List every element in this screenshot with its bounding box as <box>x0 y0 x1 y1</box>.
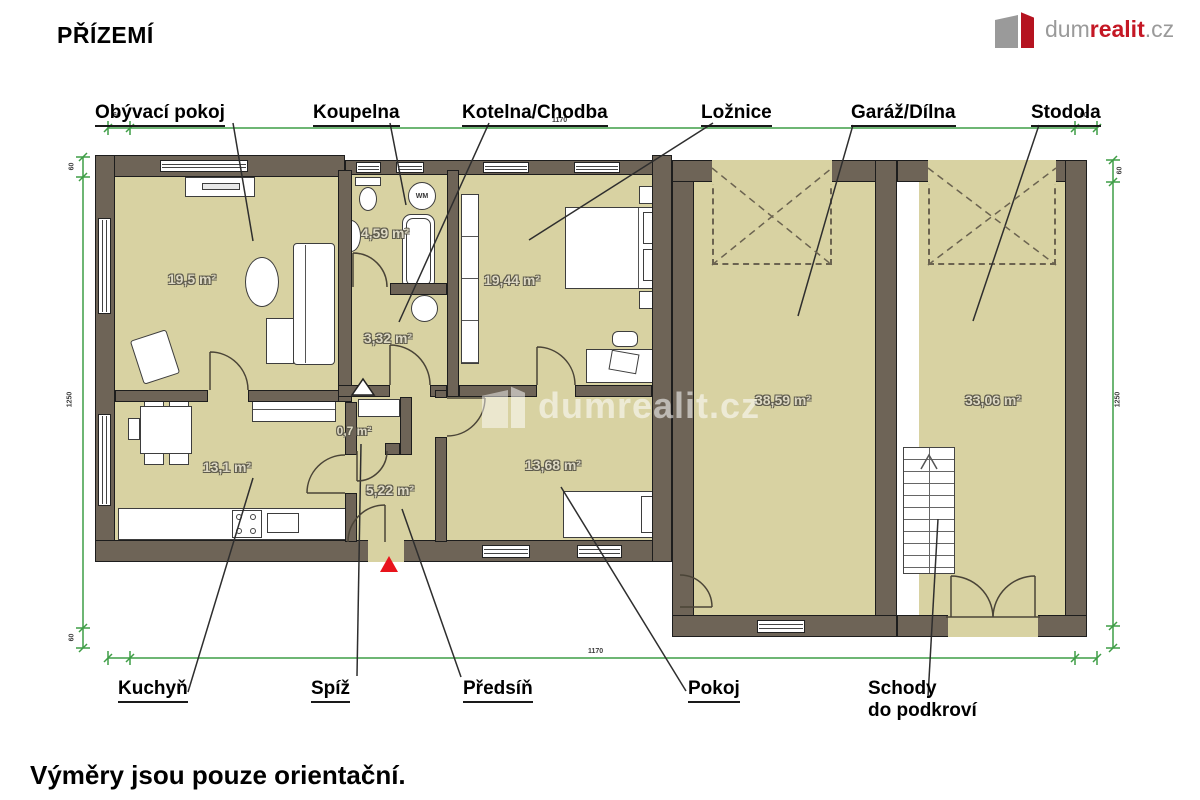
kitchen-sink <box>267 513 299 533</box>
dining-chair <box>144 453 164 465</box>
label-kitchen: Kuchyň <box>118 678 188 703</box>
attic-stairs <box>903 447 955 574</box>
area-label-garage: 38,59 m² <box>755 392 811 408</box>
dumrealit-logo: dumrealit.cz <box>995 8 1174 50</box>
window-pokoj-bottom <box>482 545 530 558</box>
wall-pantry-bottom <box>385 443 400 455</box>
stove-burner <box>236 514 242 520</box>
wall-barn-right <box>1065 160 1087 637</box>
wall-bedroom-pokoj <box>459 385 537 397</box>
area-label-pokoj: 13,68 m² <box>525 457 581 473</box>
wall-garage-barn <box>875 160 897 637</box>
label-barn: Stodola <box>1031 102 1101 127</box>
wall-bath-boiler <box>390 283 447 295</box>
bathtub-inner <box>406 218 431 286</box>
wall-hall-pokoj <box>435 437 447 542</box>
window-bedroom-top <box>574 162 620 173</box>
window-kitchen-left <box>98 414 111 506</box>
wardrobe <box>461 194 479 364</box>
wall-bath-bedroom <box>447 170 459 397</box>
logo-prefix: dum <box>1045 16 1090 42</box>
area-label-bathroom: 4,59 m² <box>361 225 409 241</box>
area-label-hall: 5,22 m² <box>366 482 414 498</box>
dining-chair <box>128 418 140 440</box>
label-garage: Garáž/Dílna <box>851 102 956 127</box>
window-garage-bottom <box>757 620 805 633</box>
pantry-shelf <box>358 399 400 417</box>
dining-chair <box>169 453 189 465</box>
wall-living-bathroom <box>338 170 352 402</box>
dim-number: 1250 <box>66 392 73 408</box>
label-bedroom: Ložnice <box>701 102 772 127</box>
logo-gray-block <box>995 15 1018 48</box>
wall-kitchen-hall <box>345 493 357 542</box>
dim-number: 60 <box>1116 167 1123 175</box>
disclaimer-note: Výměry jsou pouze orientační. <box>30 760 406 791</box>
page-title: PŘÍZEMÍ <box>57 22 154 49</box>
label-hall: Předsíň <box>463 678 533 703</box>
area-label-bedroom: 19,44 m² <box>484 272 540 288</box>
window-living-top <box>160 160 248 172</box>
label-attic-stairs: Schody do podkroví <box>868 678 977 722</box>
logo-suffix: .cz <box>1145 16 1174 42</box>
area-label-kitchen: 13,1 m² <box>203 459 251 475</box>
wall-boiler-hall <box>338 385 390 397</box>
label-attic-stairs-line2: do podkroví <box>868 700 977 722</box>
sofa <box>293 243 335 365</box>
label-pokoj: Pokoj <box>688 678 740 703</box>
garage-gate-opening <box>712 160 832 184</box>
sofa-cushion-line <box>305 245 306 363</box>
area-label-boiler: 3,32 m² <box>364 330 412 346</box>
window-living-left <box>98 218 111 314</box>
bed-line <box>638 208 639 288</box>
dim-number: 1170 <box>588 648 603 655</box>
wall-living-kitchen <box>248 390 345 402</box>
window-bath-top <box>396 162 424 173</box>
toilet-tank <box>355 177 381 186</box>
wall-bedroom-pokoj <box>575 385 652 397</box>
area-label-living: 19,5 m² <box>168 271 216 287</box>
wall-garage-left <box>672 160 694 637</box>
logo-red-block <box>1021 10 1034 48</box>
sofa-chaise <box>266 318 294 364</box>
wall-pantry-right <box>400 397 412 455</box>
stove-burner <box>250 514 256 520</box>
dining-table <box>140 406 192 454</box>
dim-number: 1250 <box>1114 392 1121 408</box>
desk-chair <box>612 331 638 347</box>
wall-living-kitchen <box>115 390 208 402</box>
washing-machine: WM <box>408 182 436 210</box>
area-label-pantry: 0,7 m² <box>337 424 372 438</box>
toilet-bowl <box>359 187 377 211</box>
label-pantry: Spíž <box>311 678 350 703</box>
floorplan-page: PŘÍZEMÍ dumrealit.cz WM <box>0 0 1200 800</box>
logo-text: dumrealit.cz <box>1045 16 1174 43</box>
logo-accent: realit <box>1090 16 1145 42</box>
wall-right-house <box>652 155 672 562</box>
window-bath-top <box>356 162 381 173</box>
stove-burner <box>250 528 256 534</box>
tv-screen <box>202 183 240 190</box>
label-boiler-hall: Kotelna/Chodba <box>462 102 608 127</box>
washing-machine-label: WM <box>416 193 428 200</box>
window-pokoj-bottom <box>577 545 622 558</box>
coffee-table <box>245 257 279 307</box>
entrance-opening <box>368 540 404 562</box>
barn-door-opening <box>948 615 1038 637</box>
kitchen-cabinet-line <box>253 409 335 410</box>
boiler <box>411 295 438 322</box>
dim-number: 60 <box>68 634 75 642</box>
dim-number: 60 <box>68 163 75 171</box>
label-living-room: Obývací pokoj <box>95 102 225 127</box>
label-bathroom: Koupelna <box>313 102 400 127</box>
window-bedroom-top <box>483 162 529 173</box>
area-label-barn: 33,06 m² <box>965 392 1021 408</box>
barn-gate-opening <box>928 160 1056 184</box>
dumrealit-logo-icon <box>995 8 1037 50</box>
stove-burner <box>236 528 242 534</box>
wall-hall-pokoj <box>435 390 447 398</box>
label-attic-stairs-line1: Schody <box>868 678 977 700</box>
